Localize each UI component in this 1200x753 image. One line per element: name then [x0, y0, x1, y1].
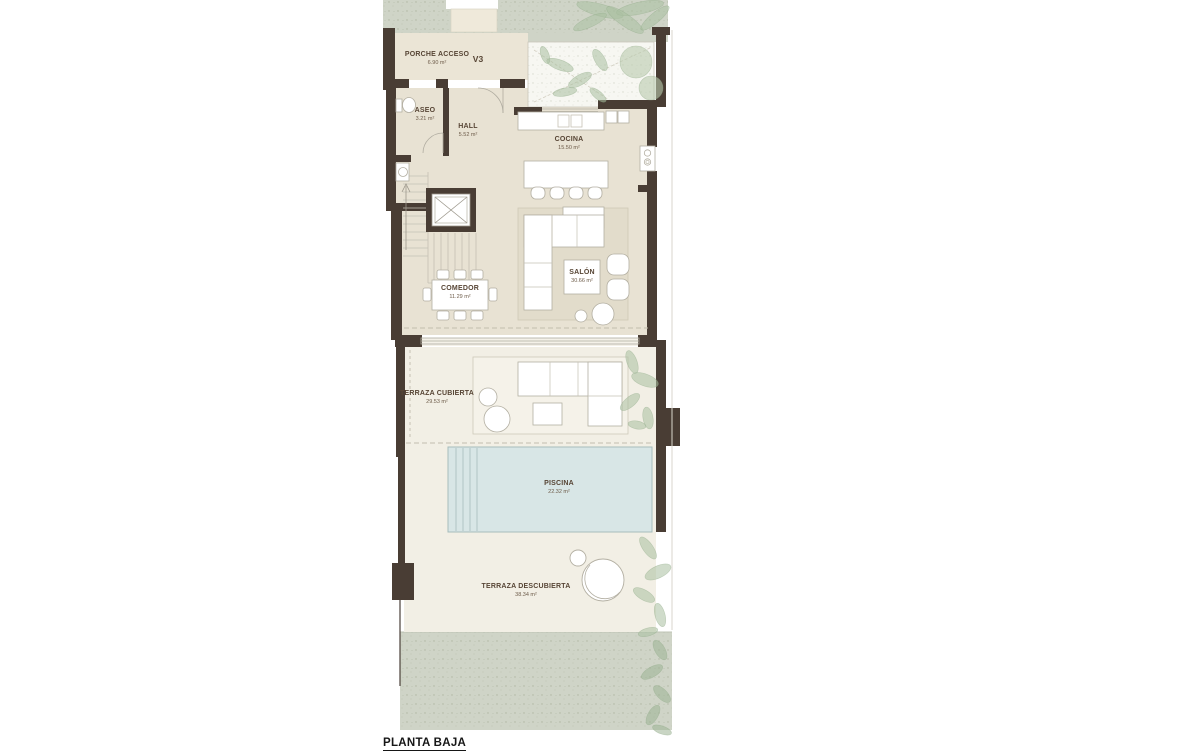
elevator: [426, 188, 476, 232]
salon-label-box: [564, 260, 600, 294]
terrace-furniture: [473, 357, 628, 434]
floor-plan-drawing: [0, 0, 1200, 753]
plan-title: PLANTA BAJA: [383, 737, 466, 751]
unit-label: V3: [473, 54, 483, 64]
plan-title-block: PLANTA BAJA e 1:100: [383, 733, 466, 753]
floor-plan: PORCHE ACCESO 6.90 m² V3 ASEO 3.21 m² HA…: [0, 0, 1200, 753]
pool: [448, 447, 652, 532]
living-room: [518, 207, 629, 325]
